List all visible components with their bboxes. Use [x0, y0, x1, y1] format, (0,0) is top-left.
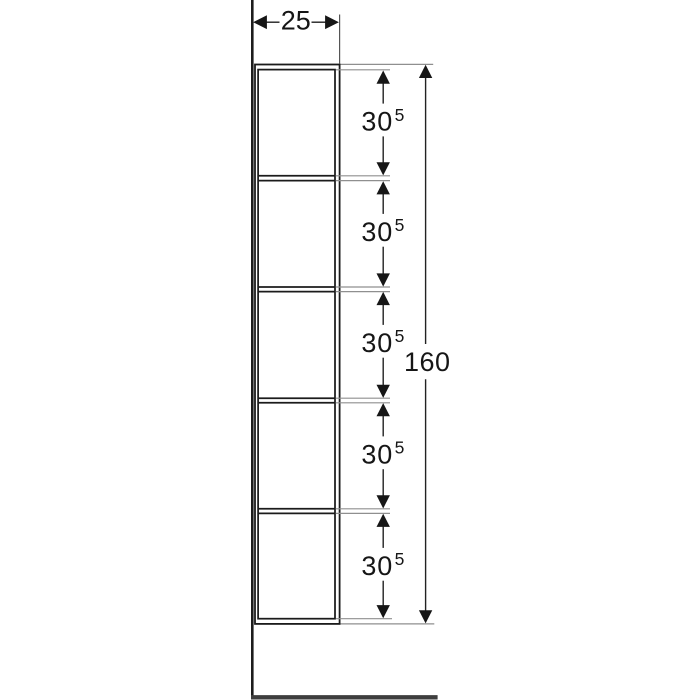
- svg-text:160: 160: [404, 347, 451, 377]
- svg-text:25: 25: [281, 6, 311, 36]
